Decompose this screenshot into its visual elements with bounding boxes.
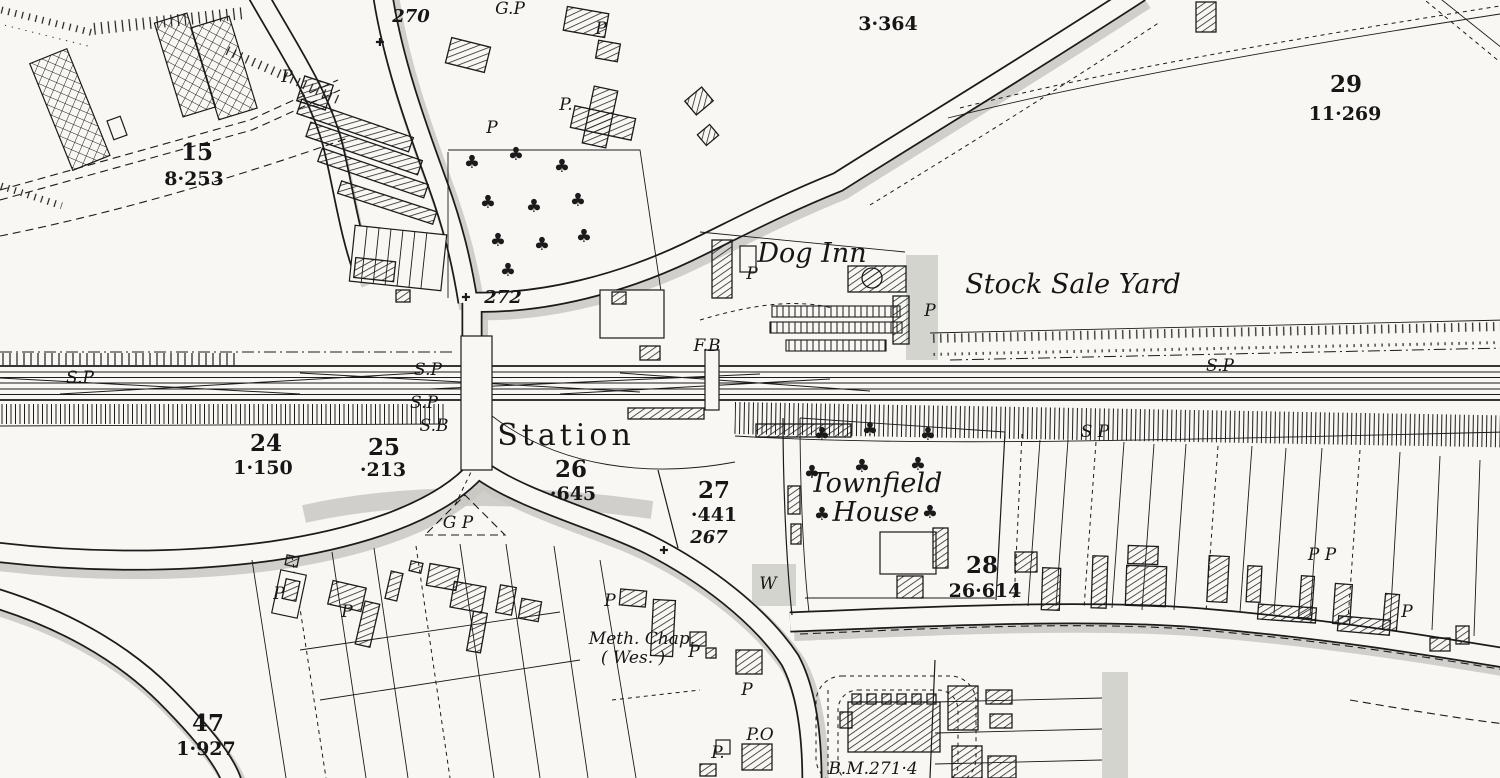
map-label: 11·269 xyxy=(1309,103,1382,125)
bld xyxy=(619,589,646,607)
bld xyxy=(791,524,801,544)
bld xyxy=(948,686,978,730)
map-label: P xyxy=(1400,602,1413,622)
tree-icon: ♣ xyxy=(508,144,524,165)
map-label: S P xyxy=(1081,422,1110,442)
bld xyxy=(1091,556,1108,608)
bld xyxy=(933,528,948,568)
bld xyxy=(893,296,909,344)
bld xyxy=(1382,593,1399,630)
bld xyxy=(1456,626,1469,644)
map-label: 3·364 xyxy=(858,13,918,35)
bld xyxy=(897,576,923,598)
bld xyxy=(1430,638,1450,651)
map-label: P. xyxy=(558,95,572,115)
g xyxy=(518,598,541,621)
map-label: P. xyxy=(710,743,724,763)
map-label: P xyxy=(340,602,353,622)
tree-icon: ♣ xyxy=(500,260,516,281)
bld xyxy=(1041,568,1060,611)
bld xyxy=(354,258,396,282)
map-label: B.M.271·4 xyxy=(827,759,917,778)
bld xyxy=(628,408,704,419)
os-map-svg: ♣ ♣ ♣ ♣ ♣ ♣ ♣ ♣ ♣ ♣ ♣ ♣ ♣ ♣ ♣ ♣ ♣ ♣ ✚ ✚ … xyxy=(0,0,1500,778)
townfield-house-outline xyxy=(880,532,936,574)
tree-icon: ♣ xyxy=(490,230,506,251)
map-label: Meth. Chap. xyxy=(588,629,695,649)
map-canvas: ♣ ♣ ♣ ♣ ♣ ♣ ♣ ♣ ♣ ♣ ♣ ♣ ♣ ♣ ♣ ♣ ♣ ♣ ✚ ✚ … xyxy=(0,0,1500,778)
bld xyxy=(756,424,851,437)
map-label: Dog Inn xyxy=(756,238,866,269)
boundary-cross-icon: ✚ xyxy=(461,291,470,304)
map-label: P P xyxy=(1307,545,1337,565)
map-label: Station xyxy=(497,418,635,453)
map-label: House xyxy=(831,497,919,528)
g xyxy=(1246,566,1262,603)
map-label: G P xyxy=(443,513,474,533)
g xyxy=(1091,556,1108,608)
bld xyxy=(285,555,299,567)
map-label: G.P xyxy=(495,0,525,19)
map-label: P xyxy=(594,19,607,39)
map-label: S.P xyxy=(414,360,442,380)
g xyxy=(596,40,621,62)
map-label: P xyxy=(280,67,293,87)
map-label: 29 xyxy=(1330,71,1362,98)
bld xyxy=(990,714,1012,728)
g xyxy=(1128,545,1159,564)
bld xyxy=(988,756,1016,778)
tree-icon: ♣ xyxy=(554,156,570,177)
g xyxy=(349,225,446,290)
grey-strip-field xyxy=(1102,672,1128,778)
bld xyxy=(712,240,732,298)
pens xyxy=(770,322,902,333)
map-label: ·441 xyxy=(691,504,737,526)
bld xyxy=(1246,566,1262,603)
map-label: 25 xyxy=(368,434,400,461)
map-label: P xyxy=(485,118,498,138)
tree-icon: ♣ xyxy=(814,424,830,445)
map-label: ·645 xyxy=(550,483,596,505)
bld xyxy=(952,746,982,778)
map-label: 28 xyxy=(966,552,998,579)
map-label: 1·927 xyxy=(176,738,236,760)
bld xyxy=(640,346,660,360)
map-label: 267 xyxy=(689,527,728,548)
tree-icon: ♣ xyxy=(480,192,496,213)
bld xyxy=(1207,556,1229,603)
map-label: 270 xyxy=(391,6,430,27)
bld xyxy=(396,290,410,302)
bld xyxy=(700,764,716,776)
bld xyxy=(1196,2,1216,32)
bld xyxy=(1299,576,1315,619)
map-label: ·213 xyxy=(360,459,406,481)
map-label: S.P xyxy=(410,393,438,413)
g xyxy=(1041,568,1060,611)
bld xyxy=(848,702,940,752)
g xyxy=(409,561,423,573)
bld xyxy=(612,292,626,304)
boundary-cross-icon: ✚ xyxy=(659,544,668,557)
map-label: 24 xyxy=(250,430,282,457)
bld xyxy=(927,694,936,704)
bld xyxy=(867,694,876,704)
bld xyxy=(882,694,891,704)
map-label: 47 xyxy=(192,710,224,737)
tree-icon: ♣ xyxy=(534,234,550,255)
bld xyxy=(862,268,882,288)
map-label: W xyxy=(759,574,778,594)
tree-icon: ♣ xyxy=(862,419,878,440)
bld xyxy=(1125,565,1166,606)
bld xyxy=(986,690,1012,704)
map-label: 27 xyxy=(698,477,730,504)
bld xyxy=(852,694,861,704)
map-label: F.B xyxy=(692,336,720,356)
pens xyxy=(772,306,900,317)
map-label: ( Wes. ) xyxy=(601,648,665,668)
bld xyxy=(1128,545,1159,564)
g xyxy=(1382,593,1399,630)
g xyxy=(450,581,486,612)
map-label: P.O xyxy=(745,725,773,745)
g xyxy=(1125,565,1166,606)
map-label: P xyxy=(923,301,936,321)
map-label: P xyxy=(272,584,285,604)
map-label: S.B xyxy=(420,416,449,436)
map-label: 8·253 xyxy=(164,168,224,190)
road-bridge xyxy=(461,336,492,470)
tree-icon: ♣ xyxy=(920,424,936,445)
g xyxy=(1207,556,1229,603)
bld xyxy=(518,598,541,621)
bld xyxy=(912,694,921,704)
bld xyxy=(596,40,621,62)
map-label: 26 xyxy=(555,456,587,483)
bld xyxy=(788,486,800,514)
g xyxy=(619,589,646,607)
bld xyxy=(409,561,423,573)
tree-icon: ♣ xyxy=(464,152,480,173)
map-label: 26·614 xyxy=(949,580,1022,602)
map-label: S.P xyxy=(1206,356,1234,376)
tree-icon: ♣ xyxy=(814,504,830,525)
map-label: 1·150 xyxy=(233,457,293,479)
map-label: P xyxy=(603,591,616,611)
cutting-wall-left xyxy=(0,404,445,424)
map-label: P xyxy=(687,642,700,662)
tree-icon: ♣ xyxy=(576,226,592,247)
bld xyxy=(742,744,772,770)
bld xyxy=(1015,552,1037,572)
boundary-cross-icon: ✚ xyxy=(375,36,384,49)
bld xyxy=(736,650,762,674)
map-label: 272 xyxy=(483,287,522,308)
g xyxy=(285,555,299,567)
g xyxy=(1299,576,1315,619)
bld xyxy=(840,712,852,728)
map-label: 15 xyxy=(181,139,213,166)
out xyxy=(600,290,664,338)
bld xyxy=(897,694,906,704)
tree-icon: ♣ xyxy=(570,190,586,211)
bld xyxy=(706,648,716,658)
tree-icon: ♣ xyxy=(922,502,938,523)
map-label: Townfield xyxy=(810,468,943,499)
map-label: P xyxy=(745,264,758,284)
bld xyxy=(450,581,486,612)
map-label: S.P xyxy=(66,368,94,388)
footbridge xyxy=(705,350,719,410)
map-label: Stock Sale Yard xyxy=(965,269,1180,300)
pens xyxy=(786,340,886,351)
tree-icon: ♣ xyxy=(526,196,542,217)
map-label: P xyxy=(740,680,753,700)
